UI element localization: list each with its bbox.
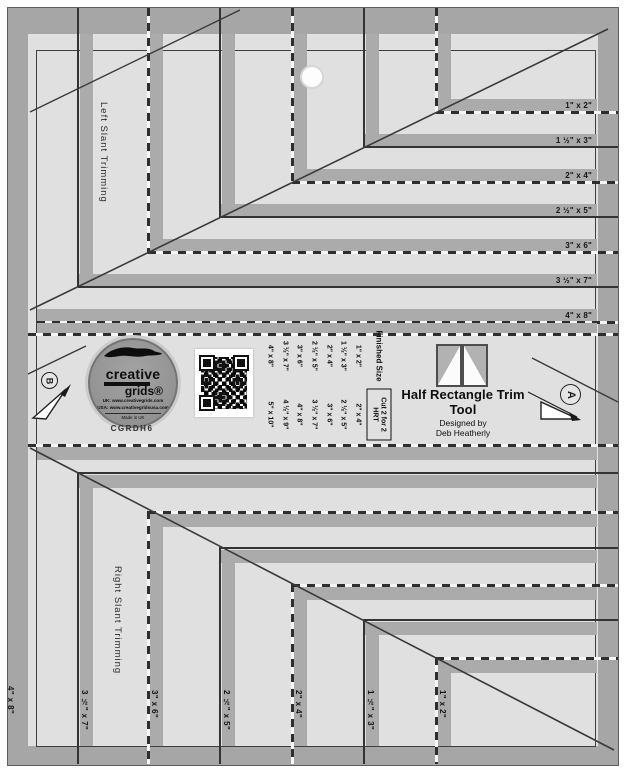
table-cell: 2" x 4" xyxy=(350,384,365,444)
table-cell: 2 ½" x 5" xyxy=(336,384,351,444)
size-marking-line xyxy=(364,146,618,148)
size-marking-line xyxy=(363,8,365,147)
trim-stripe xyxy=(438,34,451,99)
ruler-frame-left xyxy=(8,8,28,765)
size-table: Finished Size Cut 2 for 2 HRT 1" x 2" 2"… xyxy=(262,327,392,444)
size-marking-line xyxy=(436,657,618,660)
logo-website-uk: UK: www.creativegrids.com xyxy=(90,398,176,404)
size-label-bottom-2.5x5: 2 ½" x 5" xyxy=(222,690,231,730)
trim-stripe xyxy=(148,514,597,527)
table-cell: 2" x 4" xyxy=(321,327,336,384)
trim-stripe xyxy=(78,475,597,488)
size-label-3.5x7: 3 ½" x 7" xyxy=(556,276,592,285)
trim-stripe xyxy=(222,34,235,204)
size-table-cut-header: Cut 2 for 2 HRT xyxy=(366,388,391,440)
qr-finder-bottom-left xyxy=(199,395,215,411)
size-marking-line xyxy=(77,8,79,287)
size-marking-line xyxy=(78,286,618,288)
size-table-grid: Finished Size Cut 2 for 2 HRT 1" x 2" 2"… xyxy=(262,327,392,444)
size-marking-line xyxy=(78,472,618,474)
marker-b-circle: B xyxy=(41,372,58,389)
marker-a-circle: A xyxy=(560,384,581,405)
size-label-bottom-3.5x7: 3 ½" x 7" xyxy=(80,690,89,730)
product-title: Half Rectangle Trim Tool xyxy=(390,387,536,417)
table-cell: 3 ½" x 7" xyxy=(306,384,321,444)
logo-website-usa: USA: www.creativegridsusa.com xyxy=(90,405,176,411)
table-cell: 3 ½" x 7" xyxy=(277,327,292,384)
size-marking-line xyxy=(220,547,618,549)
size-label-2x4: 2" x 4" xyxy=(565,171,592,180)
logo-brand-bottom: grids® xyxy=(90,386,176,397)
logo-brand-top: creative xyxy=(90,368,176,381)
size-marking-line xyxy=(291,8,294,182)
half-rectangle-icon-right xyxy=(462,344,488,387)
ruler-frame-bottom xyxy=(8,746,618,765)
designed-by-label: Designed by xyxy=(390,418,536,428)
trim-stripe xyxy=(37,447,597,460)
size-marking-line xyxy=(363,619,365,764)
item-code: CGRDH6 xyxy=(96,424,168,433)
size-marking-line xyxy=(148,511,618,514)
table-cell: 1 ½" x 3" xyxy=(336,327,351,384)
creative-grids-logo: creative grids® UK: www.creativegrids.co… xyxy=(88,338,178,428)
ruler-frame-top xyxy=(8,8,618,34)
size-label-bottom-1.5x3: 1 ½" x 3" xyxy=(366,690,375,730)
hanging-hole xyxy=(302,67,322,87)
size-label-bottom-4x8: 4" x 8" xyxy=(6,686,15,714)
size-marking-line xyxy=(436,111,618,114)
size-label-bottom-3x6: 3" x 6" xyxy=(150,690,159,718)
qr-code xyxy=(195,349,253,417)
size-marking-line xyxy=(147,511,150,764)
cat-silhouette-icon xyxy=(101,344,165,360)
size-marking-line xyxy=(147,8,150,252)
size-label-4x8: 4" x 8" xyxy=(565,311,592,320)
title-block: Half Rectangle Trim Tool Designed by Deb… xyxy=(390,387,536,438)
trim-stripe xyxy=(294,34,307,169)
designer-name: Deb Heatherly xyxy=(390,428,536,438)
left-slant-trimming-label: Left Slant Trimming xyxy=(98,102,109,212)
size-marking-line xyxy=(219,547,221,764)
trim-stripe xyxy=(436,660,597,673)
trim-stripe xyxy=(292,587,597,600)
table-cell: 5" x 10" xyxy=(262,384,277,444)
qr-finder-top-right xyxy=(233,355,249,371)
trim-stripe xyxy=(220,550,597,563)
size-label-bottom-2x4: 2" x 4" xyxy=(294,690,303,718)
size-label-3x6: 3" x 6" xyxy=(565,241,592,250)
table-cell: 2 ½" x 5" xyxy=(306,327,321,384)
marker-b-letter: B xyxy=(45,377,55,384)
trim-stripe xyxy=(366,34,379,134)
size-marking-line xyxy=(148,251,618,254)
size-label-1x2: 1" x 2" xyxy=(565,101,592,110)
table-cell: 3" x 6" xyxy=(292,327,307,384)
product-photo: Left Slant Trimming Right Slant Trimming… xyxy=(0,0,624,771)
size-marking-line xyxy=(220,216,618,218)
size-label-1.5x3: 1 ½" x 3" xyxy=(556,136,592,145)
table-cell: 3" x 6" xyxy=(321,384,336,444)
size-marking-line xyxy=(292,584,618,587)
size-label-bottom-1x2: 1" x 2" xyxy=(438,690,447,718)
trim-stripe xyxy=(150,34,163,239)
qr-finder-top-left xyxy=(199,355,215,371)
trim-stripe xyxy=(80,34,93,274)
table-cell: 4" x 8" xyxy=(292,384,307,444)
table-cell: 4 ½" x 9" xyxy=(277,384,292,444)
trim-stripe xyxy=(364,622,597,635)
half-rectangle-icon-left xyxy=(436,344,462,387)
marker-a-letter: A xyxy=(564,391,576,399)
size-marking-line xyxy=(292,181,618,184)
size-marking-line xyxy=(291,584,294,764)
trim-stripe xyxy=(294,600,307,746)
size-table-finished-header: Finished Size xyxy=(365,327,392,384)
size-marking-line xyxy=(219,8,221,217)
size-marking-line xyxy=(435,8,438,112)
right-slant-trimming-label: Right Slant Trimming xyxy=(112,566,123,681)
table-cell: 1" x 2" xyxy=(350,327,365,384)
ruler-frame-right xyxy=(598,8,618,765)
table-cell: 4" x 8" xyxy=(262,327,277,384)
size-marking-line xyxy=(77,472,79,764)
size-label-2.5x5: 2 ½" x 5" xyxy=(556,206,592,215)
logo-divider xyxy=(105,413,161,414)
size-marking-line xyxy=(364,619,618,621)
